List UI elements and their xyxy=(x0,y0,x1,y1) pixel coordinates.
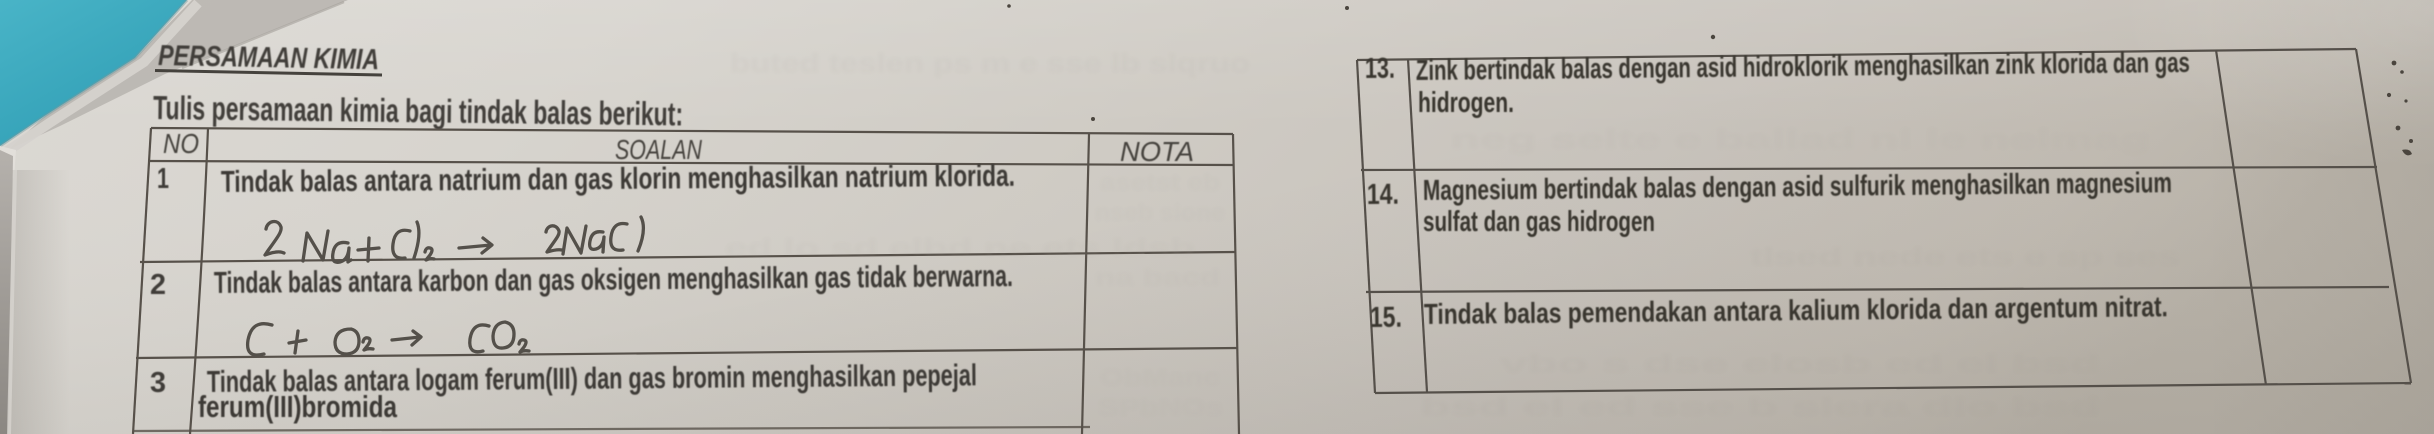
svg-text:NO: NO xyxy=(163,128,199,159)
svg-text:vbo s dse elosb ed el bsd: vbo s dse elosb ed el bsd xyxy=(1500,351,2100,378)
svg-text:14.: 14. xyxy=(1367,179,1399,211)
svg-text:15.: 15. xyxy=(1370,302,1402,334)
svg-text:bsd el ed sse b slera dlo bsd: bsd el ed sse b slera dlo bsd xyxy=(1420,394,2100,421)
svg-text:1: 1 xyxy=(157,163,169,195)
svg-text:buted teslen ps m e sse lb slq: buted teslen ps m e sse lb slqruo xyxy=(730,48,1250,78)
svg-text:hidrogen.: hidrogen. xyxy=(1418,87,1514,119)
svg-text:Tindak balas antara natrium da: Tindak balas antara natrium dan gas klor… xyxy=(221,158,1015,199)
svg-text:ferum(III)bromida: ferum(III)bromida xyxy=(198,389,398,424)
svg-text:sulfat dan gas hidrogen: sulfat dan gas hidrogen xyxy=(1423,206,1655,238)
svg-text:3: 3 xyxy=(150,367,166,399)
svg-text:Tulis persamaan kimia bagi tin: Tulis persamaan kimia bagi tindak balas … xyxy=(153,89,683,132)
svg-text:na bacd: na bacd xyxy=(1095,265,1220,290)
svg-text:2: 2 xyxy=(150,269,166,301)
svg-text:nseb sione: nseb sione xyxy=(1095,200,1225,225)
svg-text:13.: 13. xyxy=(1365,53,1395,85)
svg-text:tlsed nede ets e sp ses: tlsed nede ets e sp ses xyxy=(1750,244,2180,271)
svg-text:ed lo sd elbd ne ets ldsb: ed lo sd elbd ne ets ldsb xyxy=(725,235,1195,262)
svg-text:asetst eb: asetst eb xyxy=(1100,170,1220,195)
svg-text:SPbNOs: SPbNOs xyxy=(1098,395,1223,420)
svg-text:ObManc: ObManc xyxy=(1100,365,1220,390)
svg-text:NOTA: NOTA xyxy=(1120,136,1194,167)
svg-text:neg selte e ballad nl le nelma: neg selte e ballad nl le nelmag xyxy=(1450,124,2150,154)
svg-text:Tindak balas antara karbon dan: Tindak balas antara karbon dan gas oksig… xyxy=(214,258,1013,300)
